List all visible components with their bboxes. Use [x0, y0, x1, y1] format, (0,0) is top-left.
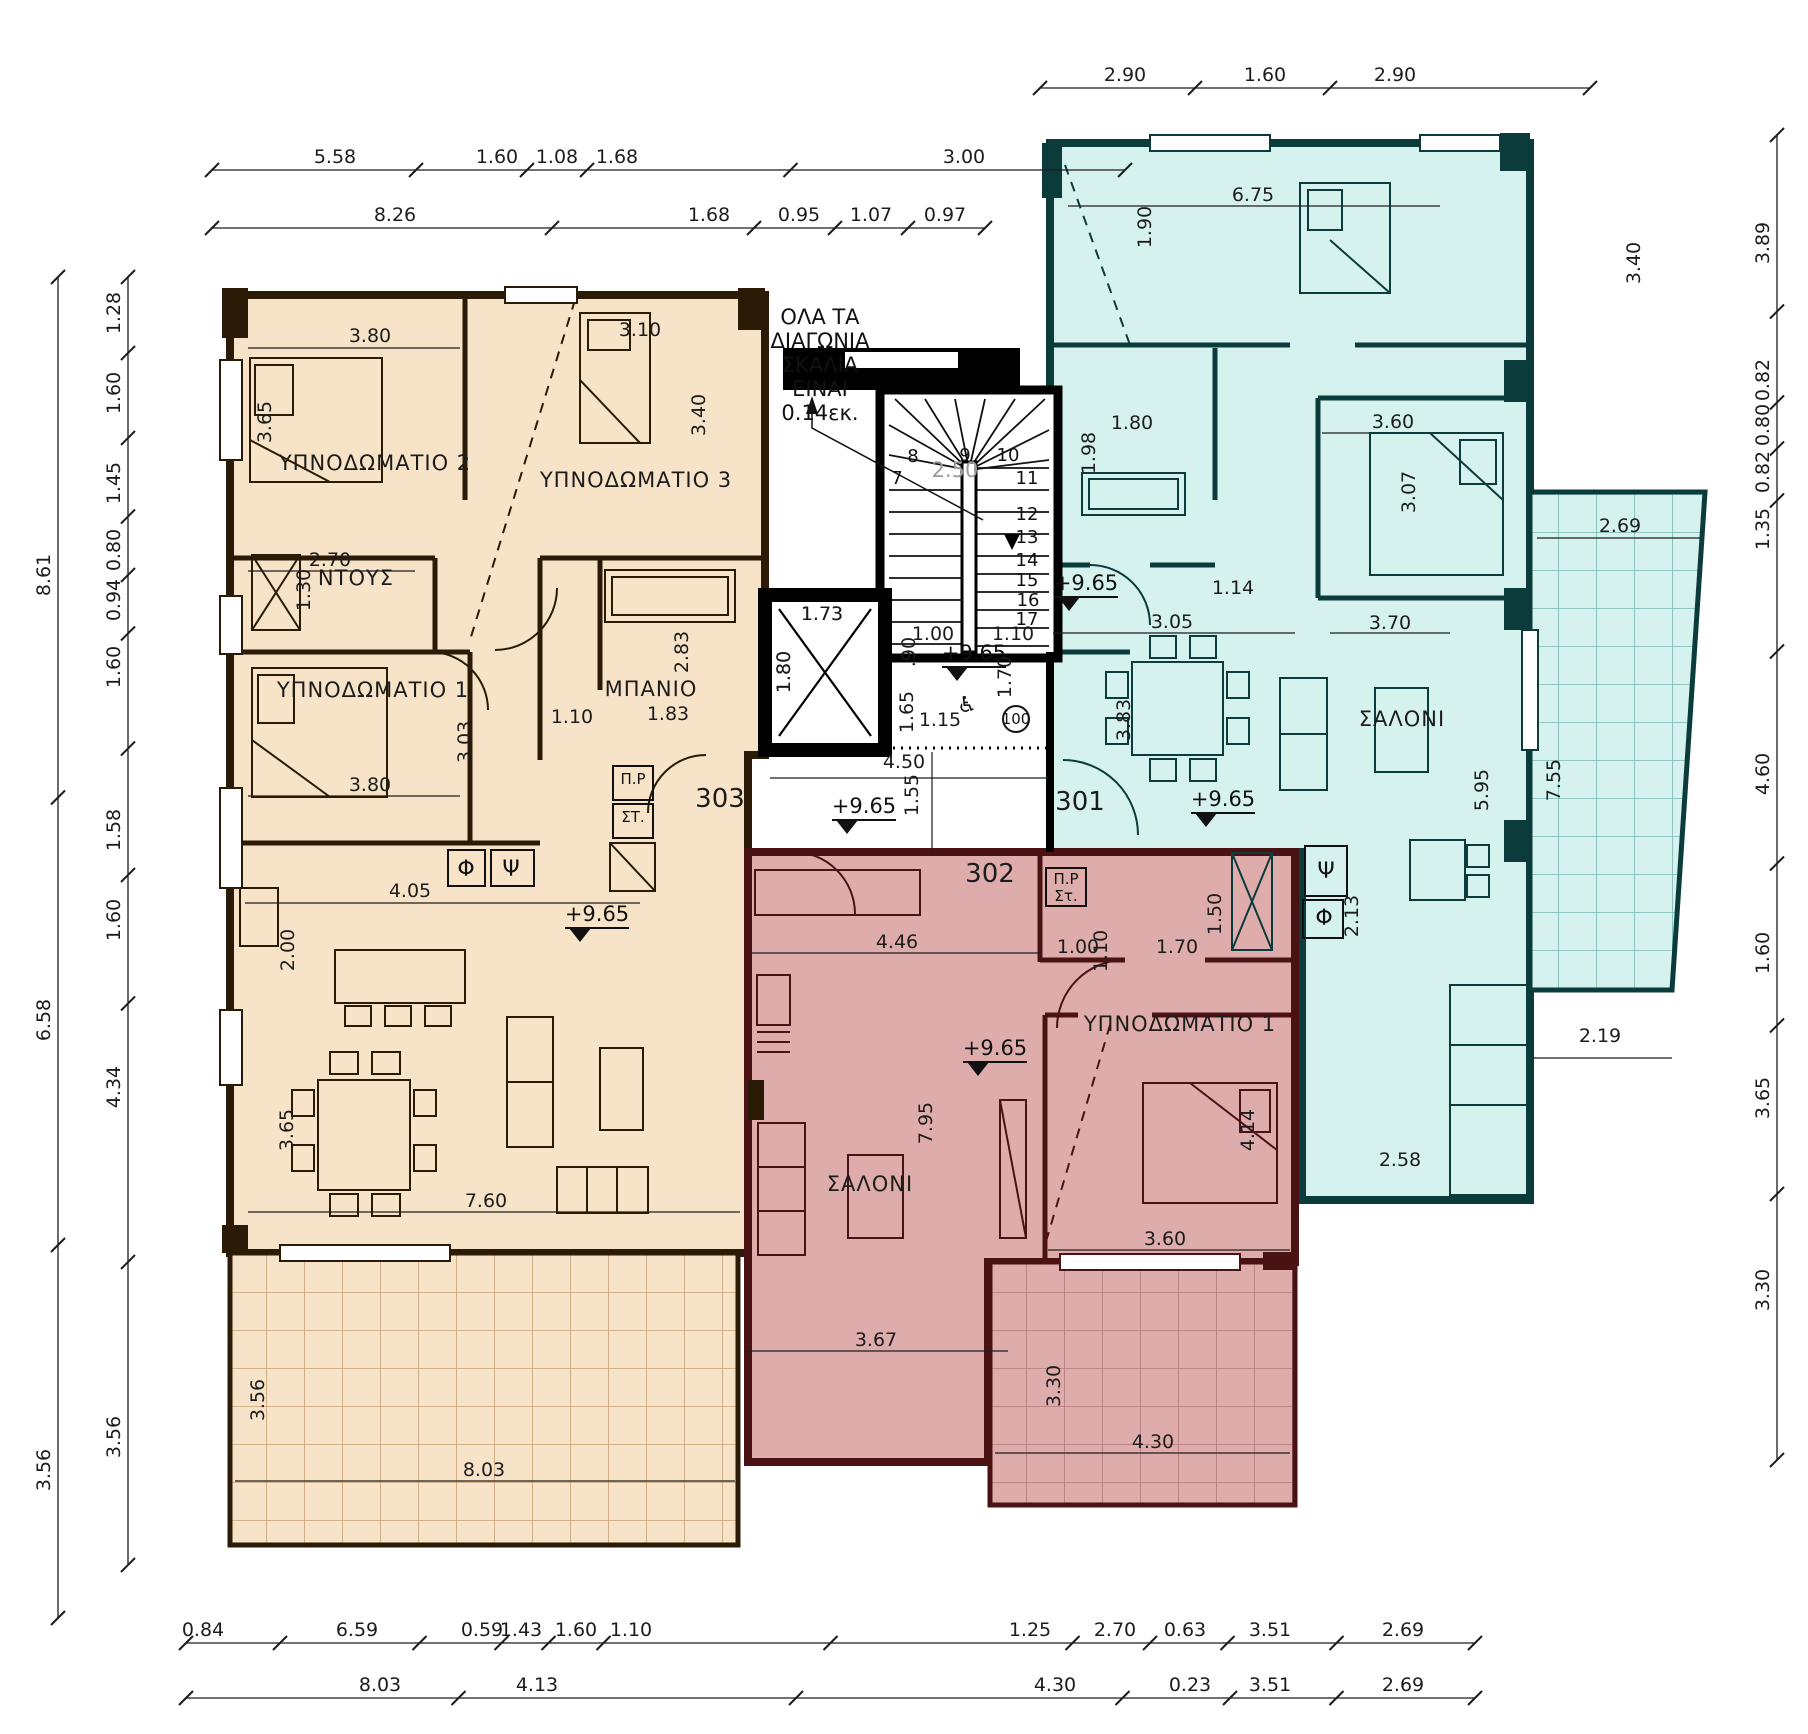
dimension-label: 3.89: [1752, 222, 1774, 264]
dimension-label: 3.80: [349, 325, 391, 347]
level-triangle: [946, 667, 968, 681]
dimension-label: 3.00: [943, 146, 985, 168]
dimension-label: 3.51: [1249, 1674, 1291, 1696]
stair-step-number: 13: [1016, 527, 1039, 548]
dimension-label: 3.80: [349, 774, 391, 796]
dimension-label: 3.30: [1043, 1365, 1065, 1407]
dimension-label: 3.60: [1372, 411, 1414, 433]
floor-plan-page: 2.901.602.905.581.601.081.683.008.261.68…: [0, 0, 1808, 1734]
dimension-label: 2.90: [1374, 64, 1416, 86]
dimension-label: .90: [898, 637, 920, 667]
dimension-label: 1.07: [850, 204, 892, 226]
dimension-label: 2.58: [1379, 1149, 1421, 1171]
dimension-label: 3.30: [1752, 1269, 1774, 1311]
dimension-label: 1.15: [919, 709, 961, 731]
dimension-label: 6.75: [1232, 184, 1274, 206]
dimension-label: 4.30: [1132, 1431, 1174, 1453]
level-marker: +9.65: [1054, 571, 1118, 595]
dimension-label: 7.95: [915, 1102, 937, 1144]
dimension-label: 4.05: [389, 880, 431, 902]
dimension-label: 8.26: [374, 204, 416, 226]
dimension-label: 1.10: [1090, 930, 1112, 972]
dimension-label: 2.69: [1599, 515, 1641, 537]
stair-step-number: 11: [1016, 468, 1039, 489]
dimension-label: 3.60: [1144, 1228, 1186, 1250]
note-line: ΟΛΑ ΤΑ: [780, 305, 860, 329]
room-label: ΜΠΑΝΙΟ: [605, 677, 698, 701]
note-line: ΔΙΑΓΩΝΙΑ: [771, 329, 871, 353]
dimension-label: 2.69: [1382, 1619, 1424, 1641]
dimension-label: 1.60: [476, 146, 518, 168]
stair-step-number: 15: [1016, 570, 1039, 591]
symbol-Ψ: Ψ: [1317, 859, 1334, 884]
dimension-label: 3.65: [1752, 1077, 1774, 1119]
dimension-label: 1.68: [596, 146, 638, 168]
dimension-label: 3.56: [247, 1379, 269, 1421]
dimension-label: 2.90: [1104, 64, 1146, 86]
dimension-label: 1.68: [688, 204, 730, 226]
dimension-label: 1.58: [103, 809, 125, 851]
dimension-label: 1.43: [500, 1619, 542, 1641]
dimension-label: 1.60: [555, 1619, 597, 1641]
level-marker: +9.65: [942, 641, 1006, 665]
dimension-label: 3.70: [1369, 612, 1411, 634]
dimension-label: 0.80: [103, 529, 125, 571]
dimension-label: 1.55: [901, 774, 923, 816]
dimension-label: 6.58: [33, 999, 55, 1041]
dimension-label: 1.83: [647, 703, 689, 725]
dimension-label: 3.56: [103, 1416, 125, 1458]
dimension-label: 1.30: [293, 569, 315, 611]
dimension-label: 5.95: [1471, 769, 1493, 811]
dimension-label: 8.03: [463, 1459, 505, 1481]
level-triangle: [836, 820, 858, 834]
room-label: ΝΤΟΥΣ: [318, 566, 394, 590]
dimension-label: 3.03: [454, 721, 476, 763]
balcony-302: [990, 1262, 1295, 1505]
elevator-depth-label: 1.73: [801, 603, 843, 625]
dimension-label: 3.83: [1113, 699, 1135, 741]
room-label: ΥΠΝΟΔΩΜΑΤΙΟ 2: [278, 451, 471, 475]
symbol-Φ: Φ: [1315, 906, 1332, 931]
dimension-label: 8.03: [359, 1674, 401, 1696]
symbol-Στ.: Στ.: [1054, 887, 1077, 905]
note-line: 0.14εκ.: [781, 401, 858, 425]
dimension-label: 0.82: [1752, 359, 1774, 401]
dimension-label: 5.58: [314, 146, 356, 168]
dimension-label: 4.13: [516, 1674, 558, 1696]
floor-plan-svg: 2.901.602.905.581.601.081.683.008.261.68…: [0, 0, 1808, 1734]
unit-label-301: 301: [1055, 787, 1105, 817]
dimension-label: 2.19: [1579, 1025, 1621, 1047]
dimension-label: 7.60: [465, 1190, 507, 1212]
stair-window: [845, 352, 958, 368]
level-marker: +9.65: [565, 902, 629, 926]
dimension-label: 1.60: [103, 372, 125, 414]
dimension-label: 0.80: [1752, 404, 1774, 446]
dimension-label: 1.65: [896, 691, 918, 733]
dimension-label: 4.34: [103, 1066, 125, 1108]
door-width-value: 100: [1002, 710, 1031, 728]
dimension-label: 3.40: [688, 394, 710, 436]
stair-step-number: 12: [1016, 504, 1039, 525]
dimension-label: 1.60: [1244, 64, 1286, 86]
dimension-label: 2.69: [1382, 1674, 1424, 1696]
balcony-301: [1530, 492, 1705, 990]
stair-step-number: 16: [1017, 590, 1040, 611]
dimension-label: 1.14: [1212, 577, 1254, 599]
unit-label-303: 303: [695, 784, 745, 814]
dimension-label: 3.51: [1249, 1619, 1291, 1641]
dimension-label: 1.90: [1134, 206, 1156, 248]
stair-step-number: 8: [907, 446, 918, 467]
dimension-label: 3.67: [855, 1329, 897, 1351]
dimension-label: 1.60: [1752, 932, 1774, 974]
room-label: ΣΑΛΟΝΙ: [1359, 707, 1445, 731]
stair-step-number: 10: [997, 445, 1020, 466]
dimension-label: 4.30: [1034, 1674, 1076, 1696]
dimension-label: 3.10: [619, 319, 661, 341]
level-marker: +9.65: [832, 794, 896, 818]
dimension-label: 1.10: [551, 706, 593, 728]
dimension-label: 4.46: [876, 931, 918, 953]
dimension-label: 0.63: [1164, 1619, 1206, 1641]
level-marker: +9.65: [1191, 787, 1255, 811]
dimension-label: 1.60: [103, 899, 125, 941]
room-label: ΥΠΝΟΔΩΜΑΤΙΟ 3: [539, 468, 732, 492]
dimension-label: 8.61: [33, 554, 55, 596]
dimension-label: 0.95: [778, 204, 820, 226]
level-marker: +9.65: [963, 1036, 1027, 1060]
dimension-label: 0.59: [461, 1619, 503, 1641]
dimension-label: 1.70: [1156, 936, 1198, 958]
dimension-label: 0.97: [924, 204, 966, 226]
dimension-label: 4.14: [1237, 1109, 1259, 1151]
dimension-label: 0.84: [182, 1619, 224, 1641]
dimension-label: 1.45: [103, 462, 125, 504]
stair-step-number: 17: [1016, 609, 1039, 630]
elevator-width-label: 1.80: [773, 651, 795, 693]
room-label: ΣΑΛΟΝΙ: [827, 1172, 913, 1196]
wheelchair-accessible-icon: ♿: [957, 693, 977, 718]
dimension-label: 0.23: [1169, 1674, 1211, 1696]
room-label: ΥΠΝΟΔΩΜΑΤΙΟ 1: [1083, 1012, 1276, 1036]
dimension-label: 3.65: [276, 1109, 298, 1151]
dimension-label: 4.50: [883, 751, 925, 773]
dimension-label: 0.94: [103, 579, 125, 621]
symbol-ΣΤ.: ΣΤ.: [621, 808, 644, 826]
note-line: ΣΚΑΛΙΑ: [782, 353, 859, 377]
symbol-Φ: Φ: [457, 857, 474, 882]
dimension-label: 1.25: [1009, 1619, 1051, 1641]
dimension-label: 2.70: [1094, 1619, 1136, 1641]
room-label: ΥΠΝΟΔΩΜΑΤΙΟ 1: [276, 678, 469, 702]
balcony-303: [230, 1253, 738, 1545]
stair-railing: [962, 462, 976, 652]
stair-step-number: 14: [1016, 550, 1039, 571]
symbol-Π.Ρ: Π.Ρ: [1053, 870, 1078, 888]
dimension-label: 2.00: [277, 929, 299, 971]
dimension-label: 3.05: [1151, 611, 1193, 633]
dimension-label: 1.80: [1111, 412, 1153, 434]
dimension-label: 4.60: [1752, 753, 1774, 795]
symbol-Π.Ρ: Π.Ρ: [620, 770, 645, 788]
dimension-label: 1.60: [103, 646, 125, 688]
symbol-Ψ: Ψ: [502, 857, 519, 882]
dimension-label: 3.07: [1398, 471, 1420, 513]
dimension-label: 3.40: [1623, 242, 1645, 284]
dimension-label: 7.55: [1543, 759, 1565, 801]
dimension-label: 0.82: [1752, 451, 1774, 493]
dimension-label: 1.08: [536, 146, 578, 168]
dimension-label: 1.10: [610, 1619, 652, 1641]
dimension-label: 3.65: [254, 401, 276, 443]
dimension-label: 2.13: [1341, 895, 1363, 937]
dimension-label: 1.28: [103, 292, 125, 334]
dimension-label: 3.56: [33, 1449, 55, 1491]
dimension-label: 1.35: [1752, 508, 1774, 550]
dimension-label: 2.83: [671, 631, 693, 673]
stair-width-label: 2.50: [932, 458, 979, 482]
dimension-label: 6.59: [336, 1619, 378, 1641]
note-line: ΕΙΝΑΙ: [792, 377, 848, 401]
unit-label-302: 302: [965, 859, 1015, 889]
dimension-label: 1.50: [1204, 893, 1226, 935]
dimension-label: 1.98: [1078, 432, 1100, 474]
